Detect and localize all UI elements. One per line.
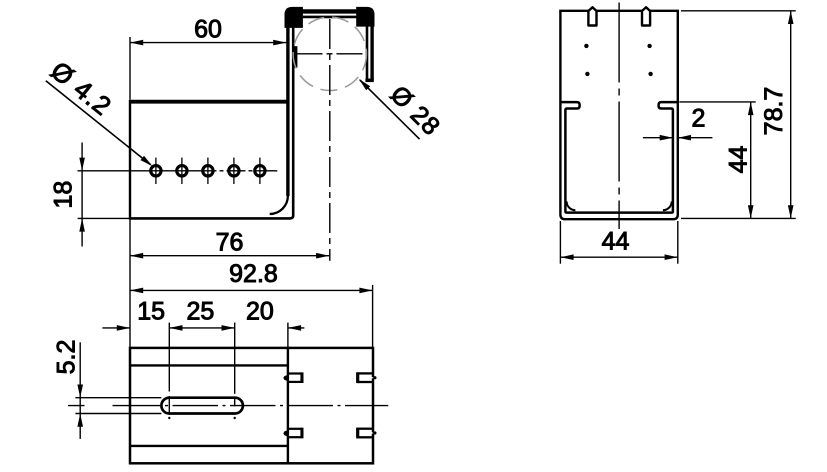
- svg-text:5.2: 5.2: [53, 340, 81, 375]
- svg-text:60: 60: [194, 16, 222, 44]
- svg-text:76: 76: [216, 229, 244, 257]
- svg-text:2: 2: [692, 105, 706, 133]
- svg-text:18: 18: [50, 181, 78, 209]
- svg-text:44: 44: [602, 228, 630, 256]
- svg-text:44: 44: [725, 146, 753, 174]
- svg-text:92.8: 92.8: [229, 260, 278, 288]
- svg-text:20: 20: [246, 298, 274, 326]
- svg-text:25: 25: [186, 298, 214, 326]
- svg-text:15: 15: [137, 298, 165, 326]
- svg-text:78.7: 78.7: [760, 87, 788, 136]
